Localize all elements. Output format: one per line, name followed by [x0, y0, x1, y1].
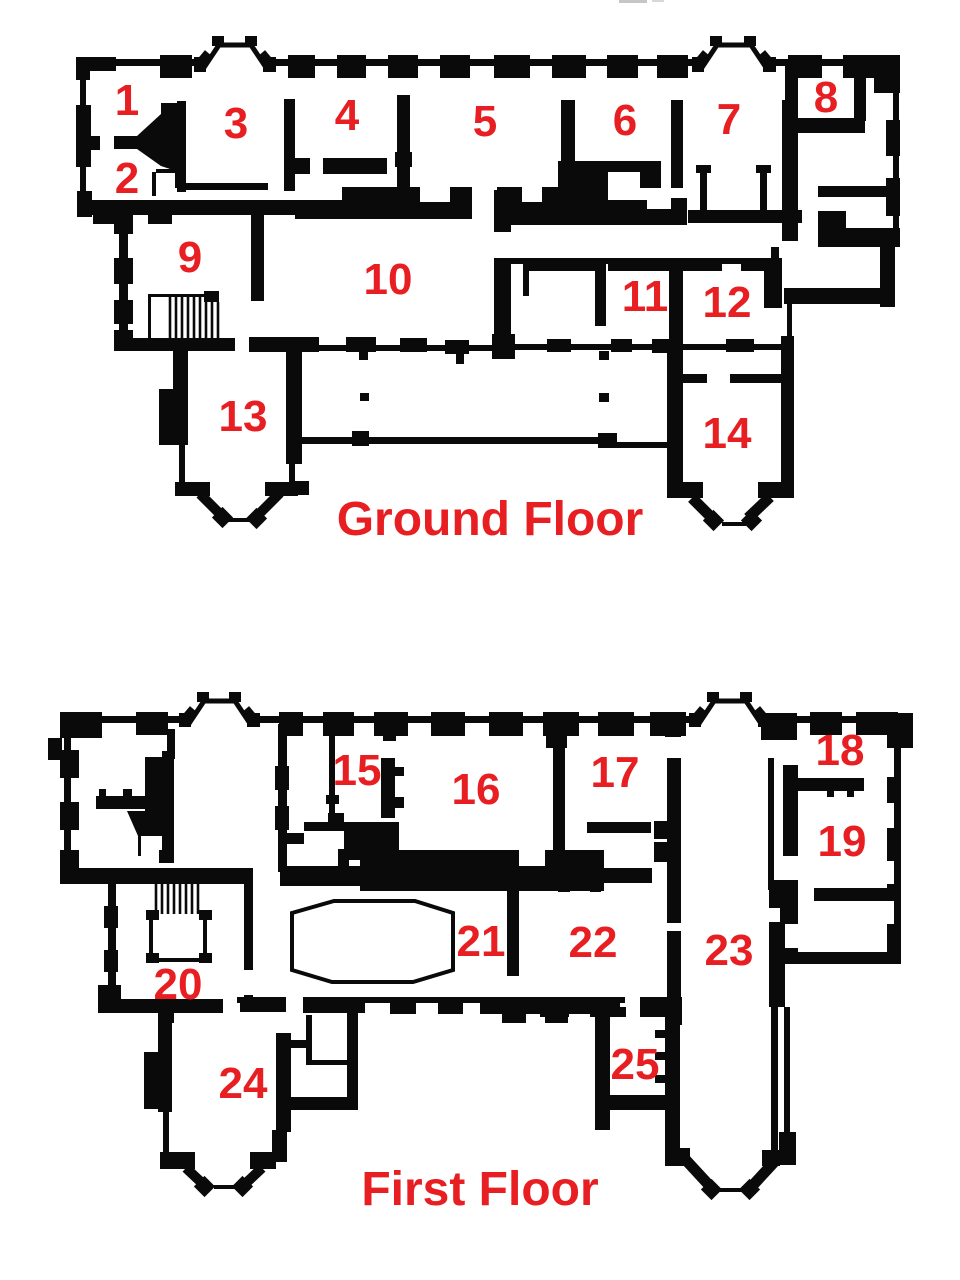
svg-text:6: 6 — [613, 96, 637, 145]
svg-text:24: 24 — [219, 1059, 268, 1108]
svg-text:3: 3 — [224, 99, 248, 148]
svg-text:4: 4 — [335, 91, 360, 140]
svg-text:2: 2 — [115, 154, 139, 203]
svg-text:15: 15 — [333, 746, 382, 795]
svg-text:11: 11 — [622, 272, 669, 321]
svg-text:9: 9 — [178, 233, 202, 282]
svg-text:18: 18 — [816, 726, 865, 775]
svg-text:7: 7 — [717, 95, 741, 144]
svg-text:16: 16 — [452, 765, 501, 814]
svg-text:10: 10 — [364, 255, 413, 304]
svg-text:21: 21 — [457, 917, 506, 966]
svg-text:13: 13 — [219, 392, 268, 441]
svg-text:12: 12 — [703, 278, 752, 327]
svg-text:1: 1 — [115, 76, 139, 125]
svg-text:8: 8 — [814, 73, 838, 122]
svg-text:23: 23 — [705, 926, 754, 975]
svg-text:25: 25 — [611, 1040, 660, 1089]
svg-text:17: 17 — [591, 748, 640, 797]
svg-text:20: 20 — [154, 960, 203, 1009]
svg-text:19: 19 — [818, 817, 867, 866]
svg-text:Ground Floor: Ground Floor — [337, 493, 644, 546]
svg-text:5: 5 — [473, 97, 497, 146]
svg-text:First Floor: First Floor — [361, 1163, 598, 1216]
svg-text:14: 14 — [703, 409, 752, 458]
svg-text:22: 22 — [569, 918, 618, 967]
